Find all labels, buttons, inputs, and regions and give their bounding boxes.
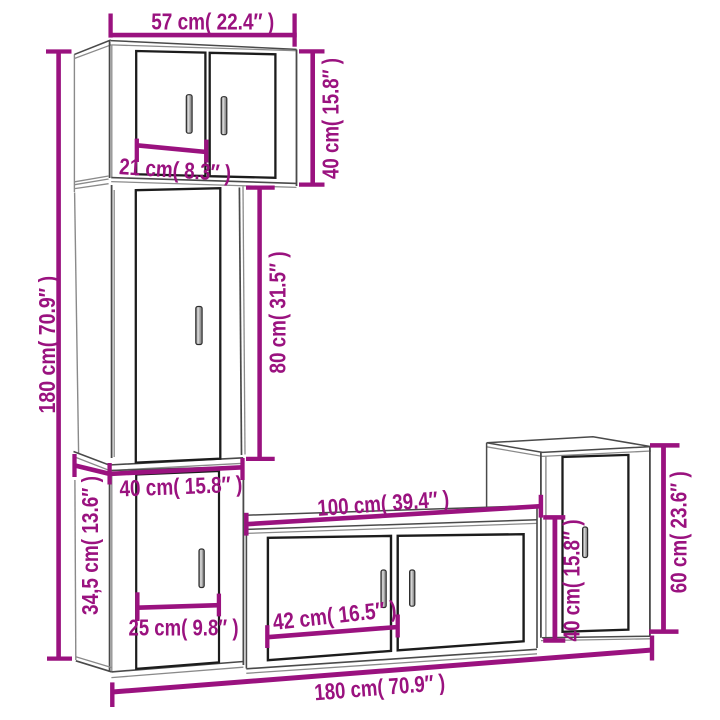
svg-text:60 cm( 23.6″ ): 60 cm( 23.6″ ) xyxy=(666,471,692,593)
svg-text:180 cm( 70.9″ ): 180 cm( 70.9″ ) xyxy=(34,276,60,414)
svg-text:25 cm( 9.8″ ): 25 cm( 9.8″ ) xyxy=(129,615,239,641)
svg-text:34,5 cm( 13.6″ ): 34,5 cm( 13.6″ ) xyxy=(77,476,103,615)
svg-text:80 cm( 31.5″ ): 80 cm( 31.5″ ) xyxy=(264,252,290,374)
svg-text:40 cm( 15.8″ ): 40 cm( 15.8″ ) xyxy=(119,471,243,502)
svg-text:40 cm( 15.8″ ): 40 cm( 15.8″ ) xyxy=(558,520,584,642)
svg-text:57 cm( 22.4″ ): 57 cm( 22.4″ ) xyxy=(151,8,274,34)
svg-text:40 cm( 15.8″ ): 40 cm( 15.8″ ) xyxy=(318,58,344,179)
